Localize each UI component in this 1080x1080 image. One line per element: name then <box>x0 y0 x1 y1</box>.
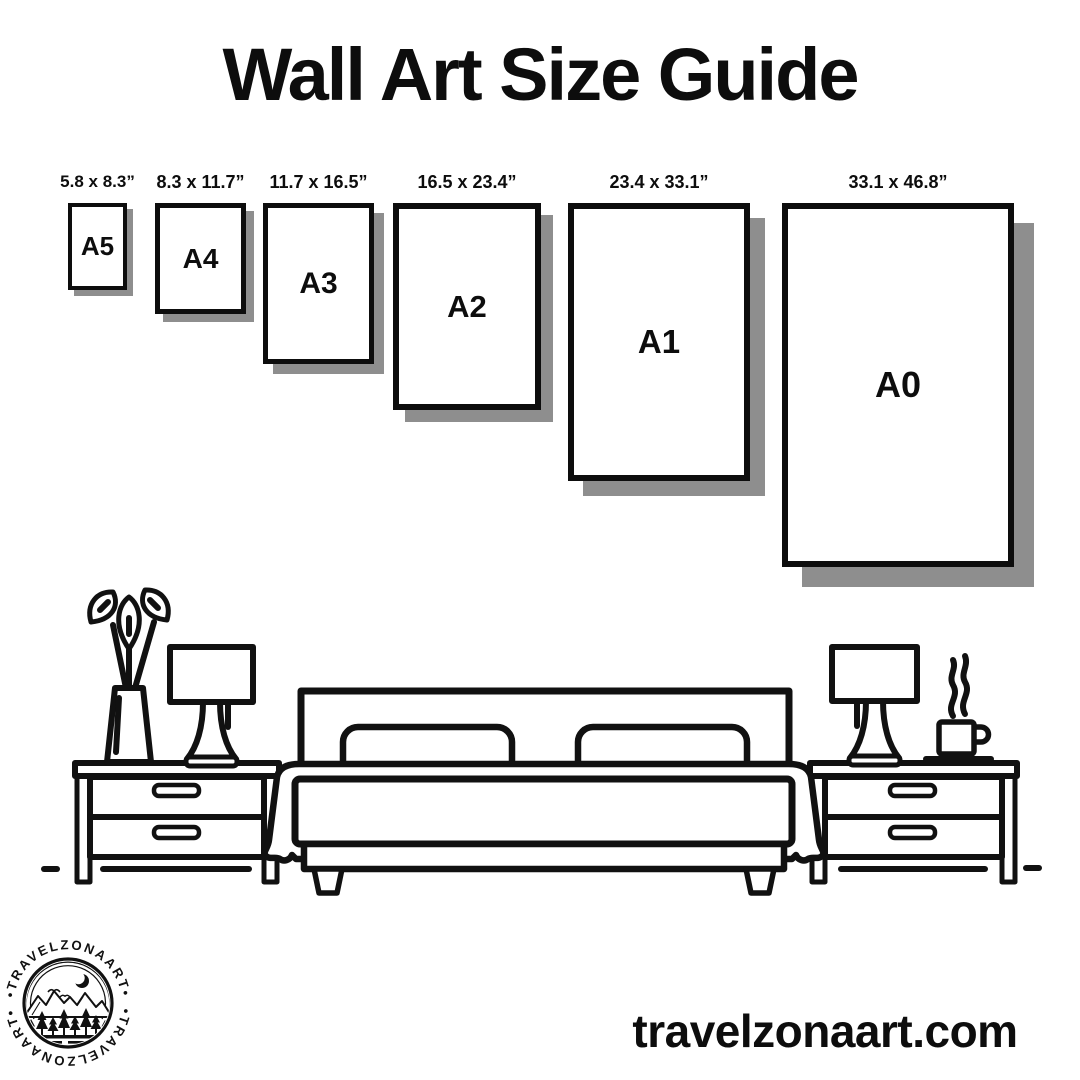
steam <box>963 656 967 714</box>
drawer-handle <box>154 827 199 838</box>
nightstand-top <box>75 763 279 776</box>
lamp-shade <box>832 647 917 701</box>
paper-size-card-a2: A2 <box>393 203 541 410</box>
website-text: travelzonaart.com <box>590 1004 1060 1058</box>
paper-size-code: A4 <box>183 243 219 275</box>
size-dimensions-label: 8.3 x 11.7” <box>156 172 244 193</box>
size-dimensions-label: 16.5 x 23.4” <box>417 172 516 193</box>
logo-arc-text-top: •TRAVELZONAART• <box>4 937 132 998</box>
paper-size-code: A1 <box>638 323 680 361</box>
size-block-a2: 16.5 x 23.4” A2 <box>393 203 541 410</box>
size-comparison: 5.8 x 8.3” A5 8.3 x 11.7” A4 11.7 x 16.5… <box>0 0 1080 600</box>
paper-size-code: A3 <box>299 267 337 301</box>
nightstand-left-icon <box>75 763 279 882</box>
paper-size-card-a1: A1 <box>568 203 750 481</box>
size-dimensions-label: 5.8 x 8.3” <box>60 172 135 192</box>
flower-vase-icon <box>90 590 168 762</box>
bed-leg <box>314 869 342 893</box>
paper-size-code: A5 <box>81 231 114 262</box>
size-block-a5: 5.8 x 8.3” A5 <box>68 203 127 290</box>
size-block-a3: 11.7 x 16.5” A3 <box>263 203 374 364</box>
size-block-a4: 8.3 x 11.7” A4 <box>155 203 246 314</box>
drawer-handle <box>890 827 935 838</box>
bed-base <box>304 844 784 869</box>
drawer-handle <box>154 785 199 796</box>
steam <box>951 660 955 716</box>
nightstand-top <box>810 763 1017 776</box>
bed-leg <box>746 869 774 893</box>
paper-size-card-a4: A4 <box>155 203 246 314</box>
paper-size-card-a5: A5 <box>68 203 127 290</box>
brand-logo-badge: •TRAVELZONAART• •TRAVELZONAART• <box>4 936 132 1072</box>
nightstand-right-icon <box>810 763 1017 882</box>
table-lamp-left-icon <box>170 647 253 766</box>
size-dimensions-label: 23.4 x 33.1” <box>609 172 708 193</box>
paper-size-code: A2 <box>447 289 487 325</box>
paper-size-card-a3: A3 <box>263 203 374 364</box>
drawer-handle <box>890 785 935 796</box>
paper-size-code: A0 <box>875 364 921 406</box>
mattress <box>295 779 792 844</box>
bedroom-illustration <box>40 578 1045 900</box>
size-dimensions-label: 33.1 x 46.8” <box>848 172 947 193</box>
size-block-a1: 23.4 x 33.1” A1 <box>568 203 750 481</box>
paper-size-card-a0: A0 <box>782 203 1014 567</box>
bird-icon <box>60 995 70 997</box>
cup-body <box>939 722 974 754</box>
size-dimensions-label: 11.7 x 16.5” <box>269 172 367 193</box>
double-bed-icon <box>265 691 824 893</box>
coffee-cup-icon <box>926 656 991 759</box>
poster: Wall Art Size Guide 5.8 x 8.3” A5 8.3 x … <box>0 0 1080 1080</box>
table-lamp-right-icon <box>832 647 917 765</box>
lamp-shade <box>170 647 253 702</box>
size-block-a0: 33.1 x 46.8” A0 <box>782 203 1014 567</box>
